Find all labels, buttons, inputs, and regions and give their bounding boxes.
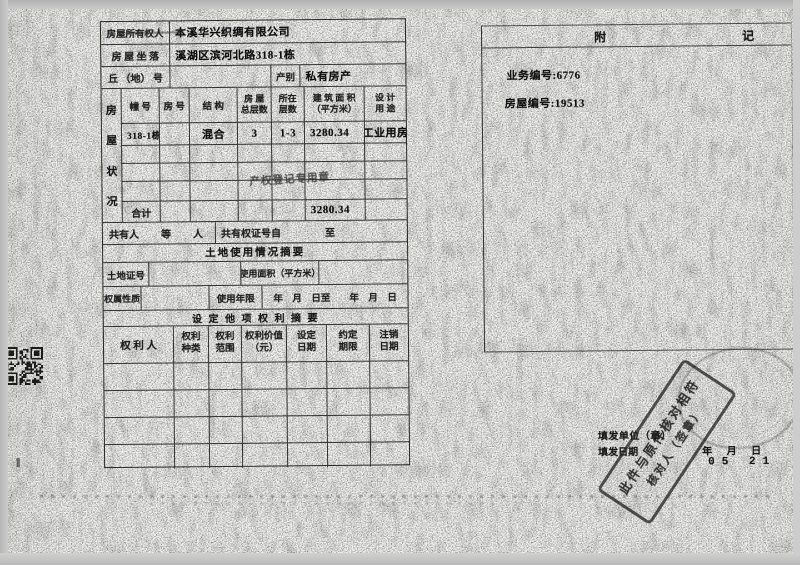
issue-date-value: 05 21	[708, 456, 776, 469]
category-value: 私有房产	[299, 64, 405, 86]
empty-cell	[286, 361, 326, 388]
empty-cell	[370, 414, 409, 441]
empty-cell	[326, 361, 369, 388]
empty-cell	[286, 388, 326, 415]
empty-cell	[287, 415, 327, 442]
header-rights-scope: 权利 范围	[208, 326, 241, 362]
location-value: 溪湖区滨河北路318-1栋	[169, 41, 405, 65]
scan-streak	[40, 495, 770, 498]
empty-cell	[208, 389, 241, 416]
header-located-floor: 所在 层数	[271, 87, 304, 121]
empty-cell	[208, 362, 241, 389]
land-cert-label: 土地证号	[103, 263, 148, 286]
empty-cell	[105, 443, 174, 469]
header-design-use: 设 计 用 途	[364, 86, 406, 120]
scan-edge-bottom	[0, 553, 800, 565]
location-label: 房 屋 坐 落	[101, 43, 169, 66]
located-value: 1-3	[271, 121, 304, 143]
empty-cell	[364, 142, 406, 160]
header-cancel-date: 注销 日期	[369, 324, 408, 360]
category-label: 产别	[270, 65, 299, 86]
business-number: 业务编号:6776	[506, 67, 580, 84]
empty-cell	[242, 415, 287, 442]
empty-cell	[327, 442, 370, 467]
scan-streak	[150, 502, 500, 505]
scan-edge-top	[0, 0, 800, 9]
land-title-section: 土地使用情况摘要	[103, 241, 407, 262]
land-cert-section: 土地证号 使用面积（平方米）	[103, 259, 407, 286]
ink-smudge	[115, 181, 129, 199]
empty-cell	[327, 415, 370, 442]
appendix-box: 附 记 业务编号:6776 房屋编号:19513	[481, 23, 795, 353]
margin-mark: ‖	[16, 455, 20, 471]
empty-cell	[370, 441, 409, 466]
empty-cell	[241, 361, 286, 388]
area-value: 3280.34	[304, 121, 364, 144]
empty-cell	[189, 144, 237, 162]
empty-cell	[159, 180, 189, 200]
appendix-header: 附 记	[482, 24, 791, 49]
empty-cell	[189, 180, 237, 200]
empty-cell	[241, 388, 286, 415]
header-total-floors: 房 屋 总层数	[237, 88, 271, 122]
empty-cell	[105, 416, 174, 444]
empty-cell	[209, 443, 242, 468]
header-rights-kind: 权利 种类	[173, 326, 208, 362]
header-rights-holder: 权 利 人	[104, 326, 173, 363]
room-value-empty	[159, 122, 189, 144]
empty-cell	[364, 178, 406, 198]
land-term-dates: 年 月 日至 年 月 日	[261, 284, 407, 308]
unit-value: 318-1栋	[121, 123, 159, 145]
rights-title-section: 设 定 他 项 权 利 摘 要	[104, 307, 408, 326]
appendix-title-left: 附	[594, 28, 606, 45]
house-number: 房屋编号:19513	[505, 95, 585, 112]
land-section-title: 土地使用情况摘要	[103, 242, 407, 262]
land-nature-section: 权属性质 使用年限 年 月 日至 年 月 日	[103, 283, 407, 310]
empty-cell	[271, 143, 304, 161]
total-area-value: 3280.34	[305, 199, 365, 221]
floors-value: 3	[237, 122, 271, 144]
header-set-date: 设定 日期	[286, 325, 326, 361]
use-value: 工业用房	[364, 120, 406, 142]
header-agreed-term: 约定 期限	[326, 325, 369, 361]
total-label: 合计	[122, 201, 160, 222]
land-area-label: 使用面积（平方米）	[240, 261, 318, 285]
appendix-title-right: 记	[742, 27, 754, 44]
header-structure: 结 构	[189, 88, 237, 122]
header-room: 房 号	[159, 88, 189, 122]
empty-cell	[104, 389, 173, 417]
coowner-section: 共有人 等 人 共有权证号自 至	[103, 219, 407, 244]
scan-edge-left	[0, 0, 8, 565]
land-term-label: 使用年限	[208, 286, 261, 310]
rights-table-section: 权 利 人 权利 种类 权利 范围 权利价值 （元） 设定 日期	[104, 323, 409, 469]
empty-cell	[237, 144, 271, 162]
empty-cell	[304, 143, 364, 162]
header-build-area: 建 筑 面 积 （平方米）	[304, 87, 364, 122]
empty-cell	[173, 362, 208, 389]
empty-cell	[159, 162, 189, 180]
plot-value-empty	[169, 66, 270, 88]
property-form-table: 房屋所有权人 本溪华兴织绸有限公司 房 屋 坐 落 溪湖区滨河北路318-1栋 …	[100, 18, 410, 468]
plot-label: 丘 （地） 号	[101, 66, 169, 88]
header-rights-value: 权利价值 （元）	[241, 325, 286, 361]
empty-cell	[369, 360, 408, 387]
empty-cell	[209, 416, 242, 443]
empty-cell	[364, 160, 406, 178]
empty-cell	[104, 362, 173, 390]
empty-cell	[189, 162, 237, 180]
scan-artifact-dot	[177, 29, 183, 33]
owner-section: 房屋所有权人 本溪华兴织绸有限公司 房 屋 坐 落 溪湖区滨河北路318-1栋	[101, 19, 405, 66]
empty-cell	[174, 443, 209, 468]
empty-cell	[242, 442, 287, 467]
empty-cell	[159, 144, 189, 162]
owner-value: 本溪华兴织绸有限公司	[169, 19, 405, 43]
house-status-section: 房 屋 状 况 幢 号 房 号 结 构 房 屋 总层数 所在 层数 建 筑 面 …	[102, 85, 407, 222]
plot-section: 丘 （地） 号 产别 私有房产	[101, 63, 405, 88]
empty-cell	[326, 388, 369, 415]
coowner-cert-cell: 共有权证号自 至	[215, 220, 407, 243]
empty-cell	[174, 416, 209, 443]
structure-value: 混合	[189, 122, 237, 144]
scanned-property-certificate: 房屋所有权人 本溪华兴织绸有限公司 房 屋 坐 落 溪湖区滨河北路318-1栋 …	[0, 0, 800, 565]
scan-edge-right	[793, 0, 800, 565]
land-nature-label: 权属性质	[103, 287, 140, 310]
qr-code	[5, 347, 43, 385]
empty-cell	[173, 389, 208, 416]
empty-cell	[369, 387, 408, 414]
rights-section-title: 设 定 他 项 权 利 摘 要	[104, 308, 408, 326]
header-unit: 幢 号	[121, 89, 159, 123]
document-content: 房屋所有权人 本溪华兴织绸有限公司 房 屋 坐 落 溪湖区滨河北路318-1栋 …	[0, 0, 800, 565]
coowner-label-cell: 共有人 等 人	[103, 222, 215, 244]
empty-cell	[287, 442, 327, 467]
